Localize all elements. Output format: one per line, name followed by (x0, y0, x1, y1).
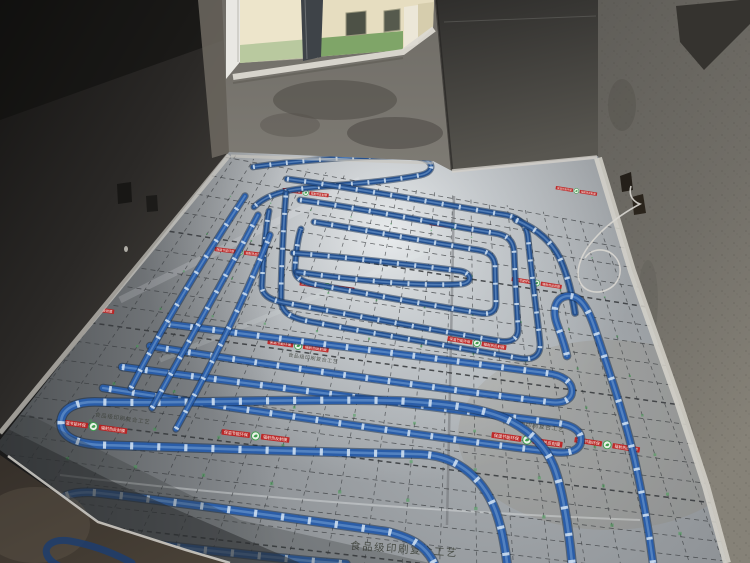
green-dot (678, 532, 681, 535)
green-dot (270, 482, 273, 485)
green-dot (431, 230, 432, 231)
green-dot (153, 428, 156, 431)
window-view-building-window-1 (346, 11, 366, 36)
green-dot (368, 338, 370, 340)
green-dot (230, 196, 231, 197)
green-dot (585, 406, 587, 408)
green-dot (202, 474, 205, 477)
scene-svg: Construction photo: blue underfloor-heat… (0, 0, 750, 563)
green-dot (542, 515, 545, 518)
back-wall-stain-2 (347, 117, 443, 149)
green-dot (602, 484, 605, 487)
green-dot (604, 296, 606, 298)
green-dot (316, 330, 318, 332)
photo-underfloor-heating-room: Construction photo: blue underfloor-heat… (0, 0, 750, 563)
green-dot (593, 445, 596, 448)
left-wall-outlet-hole-2 (146, 195, 158, 212)
green-dot (250, 240, 252, 242)
green-dot (310, 209, 311, 210)
window-view-building-window-2 (384, 9, 400, 32)
green-dot (212, 315, 214, 317)
green-dot (610, 524, 613, 527)
window-sash-bar (301, 0, 323, 61)
green-dot (183, 270, 185, 272)
green-dot (591, 257, 592, 258)
left-wall-outlet-hole-1 (117, 182, 132, 204)
green-dot (293, 406, 296, 409)
green-dot (577, 367, 579, 369)
green-dot (375, 299, 377, 301)
green-dot (353, 414, 356, 417)
green-dot (666, 493, 669, 496)
green-dot (136, 345, 138, 347)
green-dot (410, 460, 413, 463)
green-dot (270, 203, 271, 204)
green-dot (327, 292, 329, 294)
green-dot (560, 289, 562, 291)
green-dot (350, 216, 351, 217)
green-dot (338, 490, 341, 493)
green-dot (390, 223, 391, 224)
green-dot (89, 420, 92, 423)
green-dot (413, 422, 416, 425)
green-dot (231, 278, 233, 280)
green-dot (113, 382, 116, 385)
green-dot (217, 436, 220, 439)
green-dot (471, 237, 472, 238)
green-dot (264, 323, 266, 325)
green-dot (473, 430, 476, 433)
green-dot (420, 345, 422, 347)
green-dot (474, 507, 477, 510)
green-dot (538, 476, 541, 479)
green-dot (641, 414, 643, 416)
green-dot (654, 453, 657, 456)
green-dot (159, 308, 161, 310)
right-wall-stain-1 (608, 79, 636, 131)
green-dot (206, 233, 208, 235)
back-wall-stain-3 (260, 113, 320, 137)
green-dot (568, 328, 570, 330)
green-dot (616, 336, 618, 338)
left-wall-white-mark (124, 246, 128, 252)
green-dot (629, 375, 631, 377)
green-dot (406, 499, 409, 502)
partition-wall (436, 0, 598, 172)
green-dot (173, 390, 176, 393)
